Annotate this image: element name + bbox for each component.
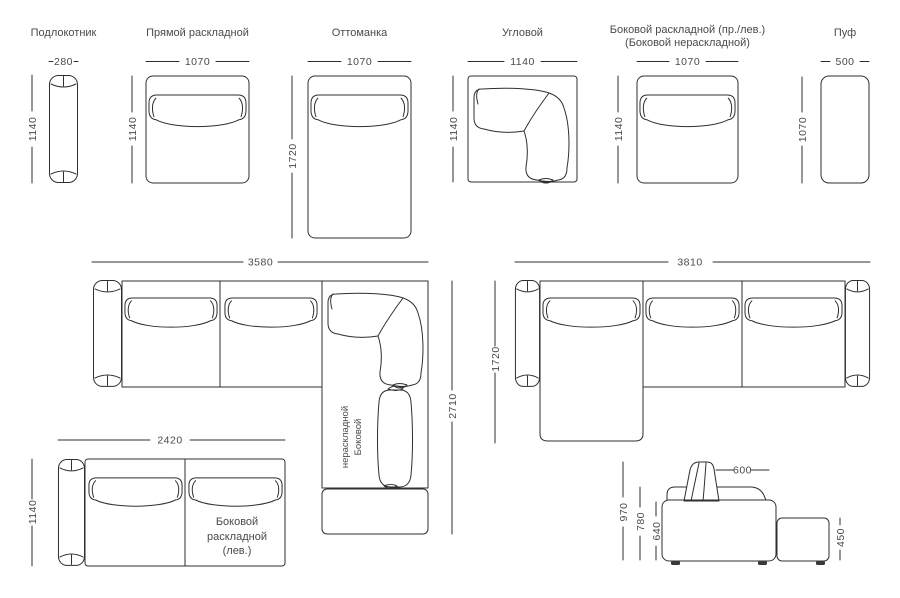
corner-cushion	[474, 88, 569, 183]
back-cushion	[189, 478, 282, 506]
armrest-shape-right	[845, 280, 869, 386]
leg-section-label: Боковой	[353, 419, 364, 456]
pouf-height-dim: 450	[835, 528, 847, 547]
armrest-shape	[58, 459, 84, 565]
module-label: Подлокотник	[31, 27, 97, 39]
back-cushion	[225, 298, 317, 327]
height-dim: 1140	[448, 117, 460, 142]
module-straight: Прямой раскладной 1070 1140	[127, 27, 249, 183]
sofa-foot	[758, 561, 767, 565]
seat-body-profile	[662, 500, 776, 561]
section-label-line3: (лев.)	[223, 545, 252, 557]
sofa-foot	[671, 561, 680, 565]
module-label: Угловой	[502, 27, 543, 39]
section-label: Боковой	[216, 516, 258, 528]
height-dim: 1140	[27, 117, 39, 142]
corner-sofa-layout: 3580 2710 Боковой нераскладной	[92, 257, 459, 535]
leg-section-label-line2: нераскладной	[340, 406, 351, 468]
width-dim: 2420	[157, 435, 182, 447]
width-dim: 1070	[675, 56, 700, 68]
module-armrest: Подлокотник 280 1140	[27, 27, 97, 183]
back-cushion	[745, 298, 842, 327]
diagram-canvas: Подлокотник 280 1140 Прямой раскладной 1…	[0, 0, 900, 598]
module-corner: Угловой 1140 1140	[448, 27, 577, 183]
total-height-dim: 970	[618, 502, 630, 521]
width-dim: 1070	[347, 56, 372, 68]
width-dim: 1070	[185, 56, 210, 68]
armrest-shape	[50, 76, 78, 183]
depth-dim: 2710	[447, 393, 459, 418]
leg-cushion	[378, 390, 413, 487]
width-dim: 280	[54, 56, 73, 68]
corner-cushion	[328, 293, 423, 388]
height-dim: 1720	[287, 143, 299, 168]
depth-dim: 1720	[490, 346, 502, 371]
section-dividers	[220, 281, 322, 387]
width-dim: 500	[835, 56, 854, 68]
module-pouf: Пуф 500 1070	[797, 27, 869, 183]
module-label: Пуф	[834, 27, 856, 39]
ottoman-sofa-layout: 3810 1720	[490, 257, 870, 444]
sofa-body	[122, 281, 428, 488]
module-body	[308, 76, 411, 238]
module-body	[637, 76, 738, 183]
module-body	[146, 76, 249, 183]
module-ottoman: Оттоманка 1070 1720	[287, 27, 411, 238]
module-side: Боковой раскладной (пр./лев.) (Боковой н…	[610, 24, 765, 183]
sofa-body	[540, 281, 845, 441]
module-label: Боковой раскладной (пр./лев.)	[610, 24, 765, 36]
pouf-profile	[777, 518, 829, 561]
straight-sofa-layout: 2420 1140 Боковой раскладной (лев.)	[27, 435, 285, 567]
height-dim: 1070	[797, 117, 809, 142]
back-cushion	[640, 95, 735, 127]
backrest-height-dim: 780	[635, 512, 647, 531]
side-view: 600 970 780 640 450	[618, 462, 847, 565]
depth-dim: 1140	[27, 500, 39, 525]
width-dim: 1140	[510, 56, 535, 68]
width-dim: 3580	[248, 257, 273, 269]
module-label-line2: (Боковой нераскладной)	[625, 37, 750, 49]
back-cushion	[125, 298, 217, 327]
section-label-line2: раскладной	[207, 531, 267, 543]
height-dim: 1140	[127, 117, 139, 142]
back-cushion	[311, 95, 408, 127]
section-dividers	[643, 281, 742, 387]
module-label: Оттоманка	[332, 27, 388, 39]
pouf-foot	[816, 561, 825, 565]
module-body	[821, 76, 869, 183]
height-dim: 1140	[613, 117, 625, 142]
armrest-shape-left	[515, 280, 539, 386]
armrest-shape	[94, 280, 122, 386]
back-cushion	[149, 95, 246, 127]
sofa-modules-diagram: Подлокотник 280 1140 Прямой раскладной 1…	[0, 0, 900, 598]
back-cushion	[646, 298, 739, 327]
back-cushion-profile	[684, 462, 719, 501]
width-dim: 3810	[677, 257, 702, 269]
armrest-height-dim: 640	[651, 521, 663, 540]
leg-ottoman	[322, 489, 428, 534]
back-cushion	[89, 478, 182, 506]
back-cushion	[543, 298, 640, 327]
module-label: Прямой раскладной	[146, 27, 249, 39]
backrest-width-dim: 600	[733, 465, 752, 477]
